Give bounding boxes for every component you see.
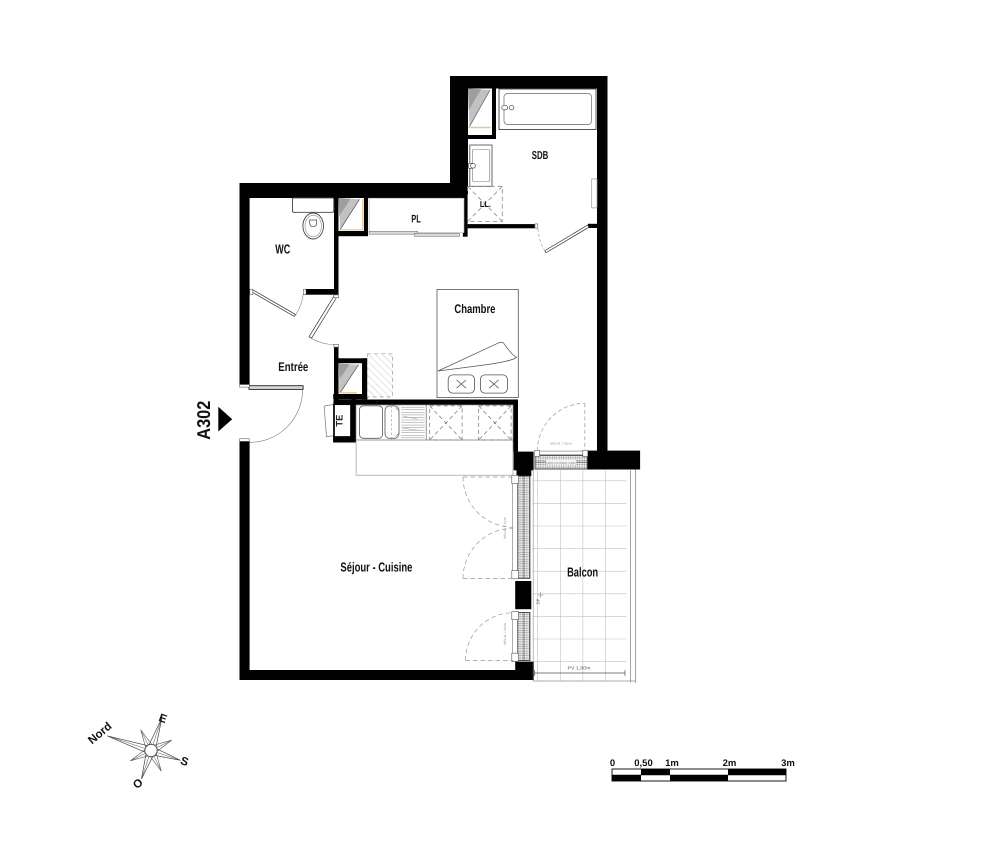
svg-text:A302: A302: [193, 401, 214, 440]
svg-text:SDB: SDB: [532, 150, 549, 162]
svg-text:SEUIL 7,5cm: SEUIL 7,5cm: [550, 442, 572, 446]
svg-text:3m: 3m: [781, 758, 795, 769]
svg-text:LL.: LL.: [480, 199, 491, 209]
svg-text:WC: WC: [275, 241, 290, 256]
svg-text:1m: 1m: [665, 758, 679, 769]
svg-text:SEUIL 7,5cm: SEUIL 7,5cm: [503, 623, 507, 645]
svg-text:PV 1,90m: PV 1,90m: [568, 666, 591, 672]
svg-text:TE: TE: [335, 415, 346, 427]
svg-text:Séjour - Cuisine: Séjour - Cuisine: [340, 560, 412, 575]
svg-text:Chambre: Chambre: [454, 302, 495, 316]
svg-text:Entrée: Entrée: [278, 360, 308, 374]
svg-text:LARG PASSAGE 0,90m: LARG PASSAGE 0,90m: [546, 461, 576, 465]
svg-text:Balcon: Balcon: [567, 564, 598, 579]
svg-text:SEUIL 7,5cm: SEUIL 7,5cm: [503, 517, 507, 539]
svg-text:DP: DP: [536, 598, 541, 604]
svg-text:0,50: 0,50: [634, 758, 653, 769]
svg-text:2m: 2m: [723, 758, 737, 769]
svg-text:PL: PL: [411, 213, 421, 225]
svg-text:0: 0: [610, 758, 615, 769]
